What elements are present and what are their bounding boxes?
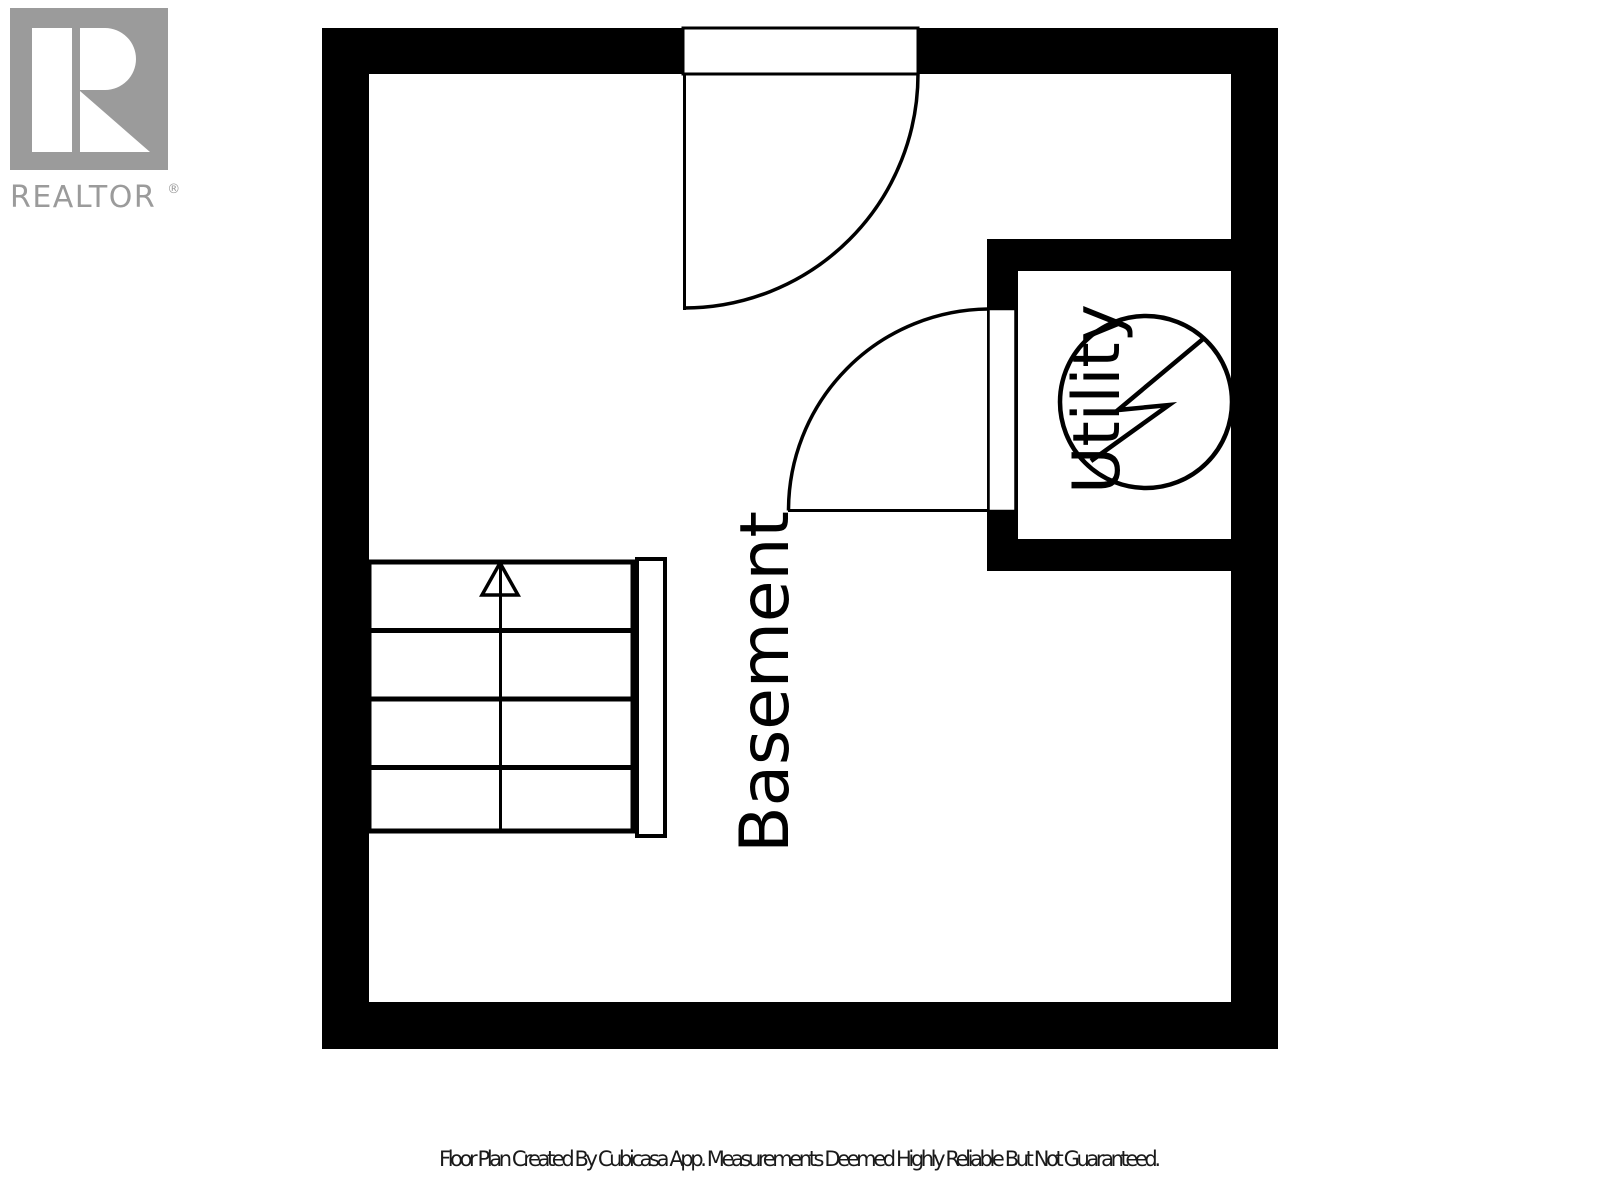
staircase [369, 559, 665, 836]
realtor-wordmark-text: REALTOR [10, 180, 156, 215]
utility-door-opening [989, 309, 1016, 511]
staircase-stringer [637, 559, 665, 836]
floor-plan-canvas: REALTOR ® [0, 0, 1600, 1200]
floor-plan-page: REALTOR ® [0, 0, 1600, 1200]
realtor-wordmark: REALTOR ® [10, 180, 182, 215]
realtor-logo: REALTOR ® [10, 8, 182, 215]
utility-wall-top [987, 239, 1231, 271]
entry-door [683, 28, 918, 310]
entry-door-opening [683, 28, 918, 74]
outer-wall-left [322, 28, 369, 1049]
footer-disclaimer: Floor Plan Created By Cubicasa App. Meas… [439, 1147, 1161, 1171]
utility-door [788, 309, 1016, 511]
utility-door-swing-arc [788, 309, 988, 511]
room-label-basement: Basement [726, 511, 805, 853]
entry-door-swing-arc [684, 74, 918, 308]
room-label-utility: Utility [1060, 304, 1135, 494]
outer-wall-right [1231, 28, 1278, 1049]
utility-wall-bottom [987, 539, 1231, 571]
outer-wall-bottom [322, 1002, 1278, 1049]
registered-trademark-symbol: ® [167, 182, 182, 197]
